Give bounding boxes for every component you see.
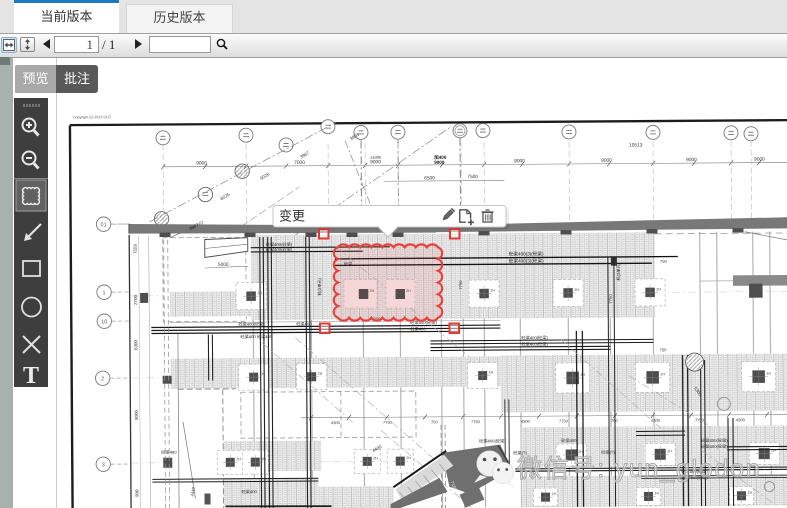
svg-text:T: T	[23, 363, 39, 387]
svg-text:4300: 4300	[736, 417, 746, 422]
svg-text:微信号: yun_glodon: 微信号: yun_glodon	[517, 455, 761, 483]
svg-text:9000: 9000	[370, 159, 381, 165]
svg-text:01: 01	[101, 222, 107, 228]
svg-text:Copyright (c) 2013 GLD: Copyright (c) 2013 GLD	[73, 115, 111, 119]
svg-text:ZH: ZH	[490, 288, 495, 292]
svg-text:ZH: ZH	[373, 456, 378, 460]
svg-text:ZH: ZH	[261, 457, 266, 461]
svg-text:750: 750	[660, 259, 668, 264]
svg-text:7750: 7750	[471, 419, 481, 424]
svg-text:ZH: ZH	[406, 289, 411, 293]
svg-text:ZH: ZH	[747, 491, 752, 495]
svg-text:6300: 6300	[133, 339, 138, 350]
svg-text:7559: 7559	[133, 243, 138, 254]
svg-text:2: 2	[101, 376, 104, 382]
svg-text:7750: 7750	[559, 418, 569, 423]
svg-text:7500: 7500	[467, 174, 478, 180]
svg-text:10513: 10513	[629, 142, 643, 148]
svg-text:9000: 9000	[754, 157, 765, 163]
svg-text:2700: 2700	[133, 294, 138, 305]
svg-text:3: 3	[102, 462, 105, 468]
svg-text:14000: 14000	[370, 155, 382, 160]
svg-text:750: 750	[431, 419, 438, 424]
svg-text:7750: 7750	[608, 294, 613, 304]
svg-text:ZH: ZH	[766, 372, 771, 376]
svg-text:变更: 变更	[279, 209, 305, 224]
svg-text:ZH: ZH	[236, 457, 241, 461]
svg-text:ZH: ZH	[574, 288, 579, 292]
svg-text:7750: 7750	[458, 280, 463, 290]
svg-text:ZH: ZH	[656, 287, 661, 291]
svg-text:ZH: ZH	[660, 372, 665, 376]
svg-text:9000: 9000	[196, 160, 207, 166]
svg-text:9000: 9000	[686, 157, 697, 163]
svg-text:4300: 4300	[521, 419, 531, 424]
svg-text:9000: 9000	[514, 158, 525, 164]
svg-text:5000: 5000	[218, 262, 229, 268]
svg-text:4300: 4300	[331, 420, 341, 425]
svg-text:ZH: ZH	[370, 289, 375, 293]
svg-text:ZH: ZH	[406, 456, 411, 460]
svg-text:6500: 6500	[424, 175, 435, 181]
svg-text:ZH: ZH	[551, 492, 556, 496]
svg-text:4300: 4300	[651, 418, 661, 423]
svg-text:9000: 9000	[134, 409, 139, 420]
svg-text:7750: 7750	[383, 420, 393, 425]
svg-text:ZH: ZH	[318, 372, 323, 376]
svg-text:1: 1	[103, 290, 106, 296]
svg-text:750: 750	[659, 347, 667, 352]
svg-text:ZH: ZH	[667, 449, 672, 453]
svg-text:ZH: ZH	[489, 370, 494, 374]
svg-text:ZH: ZH	[654, 491, 659, 495]
svg-text:900: 900	[134, 489, 139, 497]
svg-text:7000: 7000	[294, 160, 305, 166]
svg-text:9000: 9000	[434, 160, 445, 165]
svg-text:9000: 9000	[601, 158, 612, 164]
svg-text:10: 10	[101, 319, 107, 325]
